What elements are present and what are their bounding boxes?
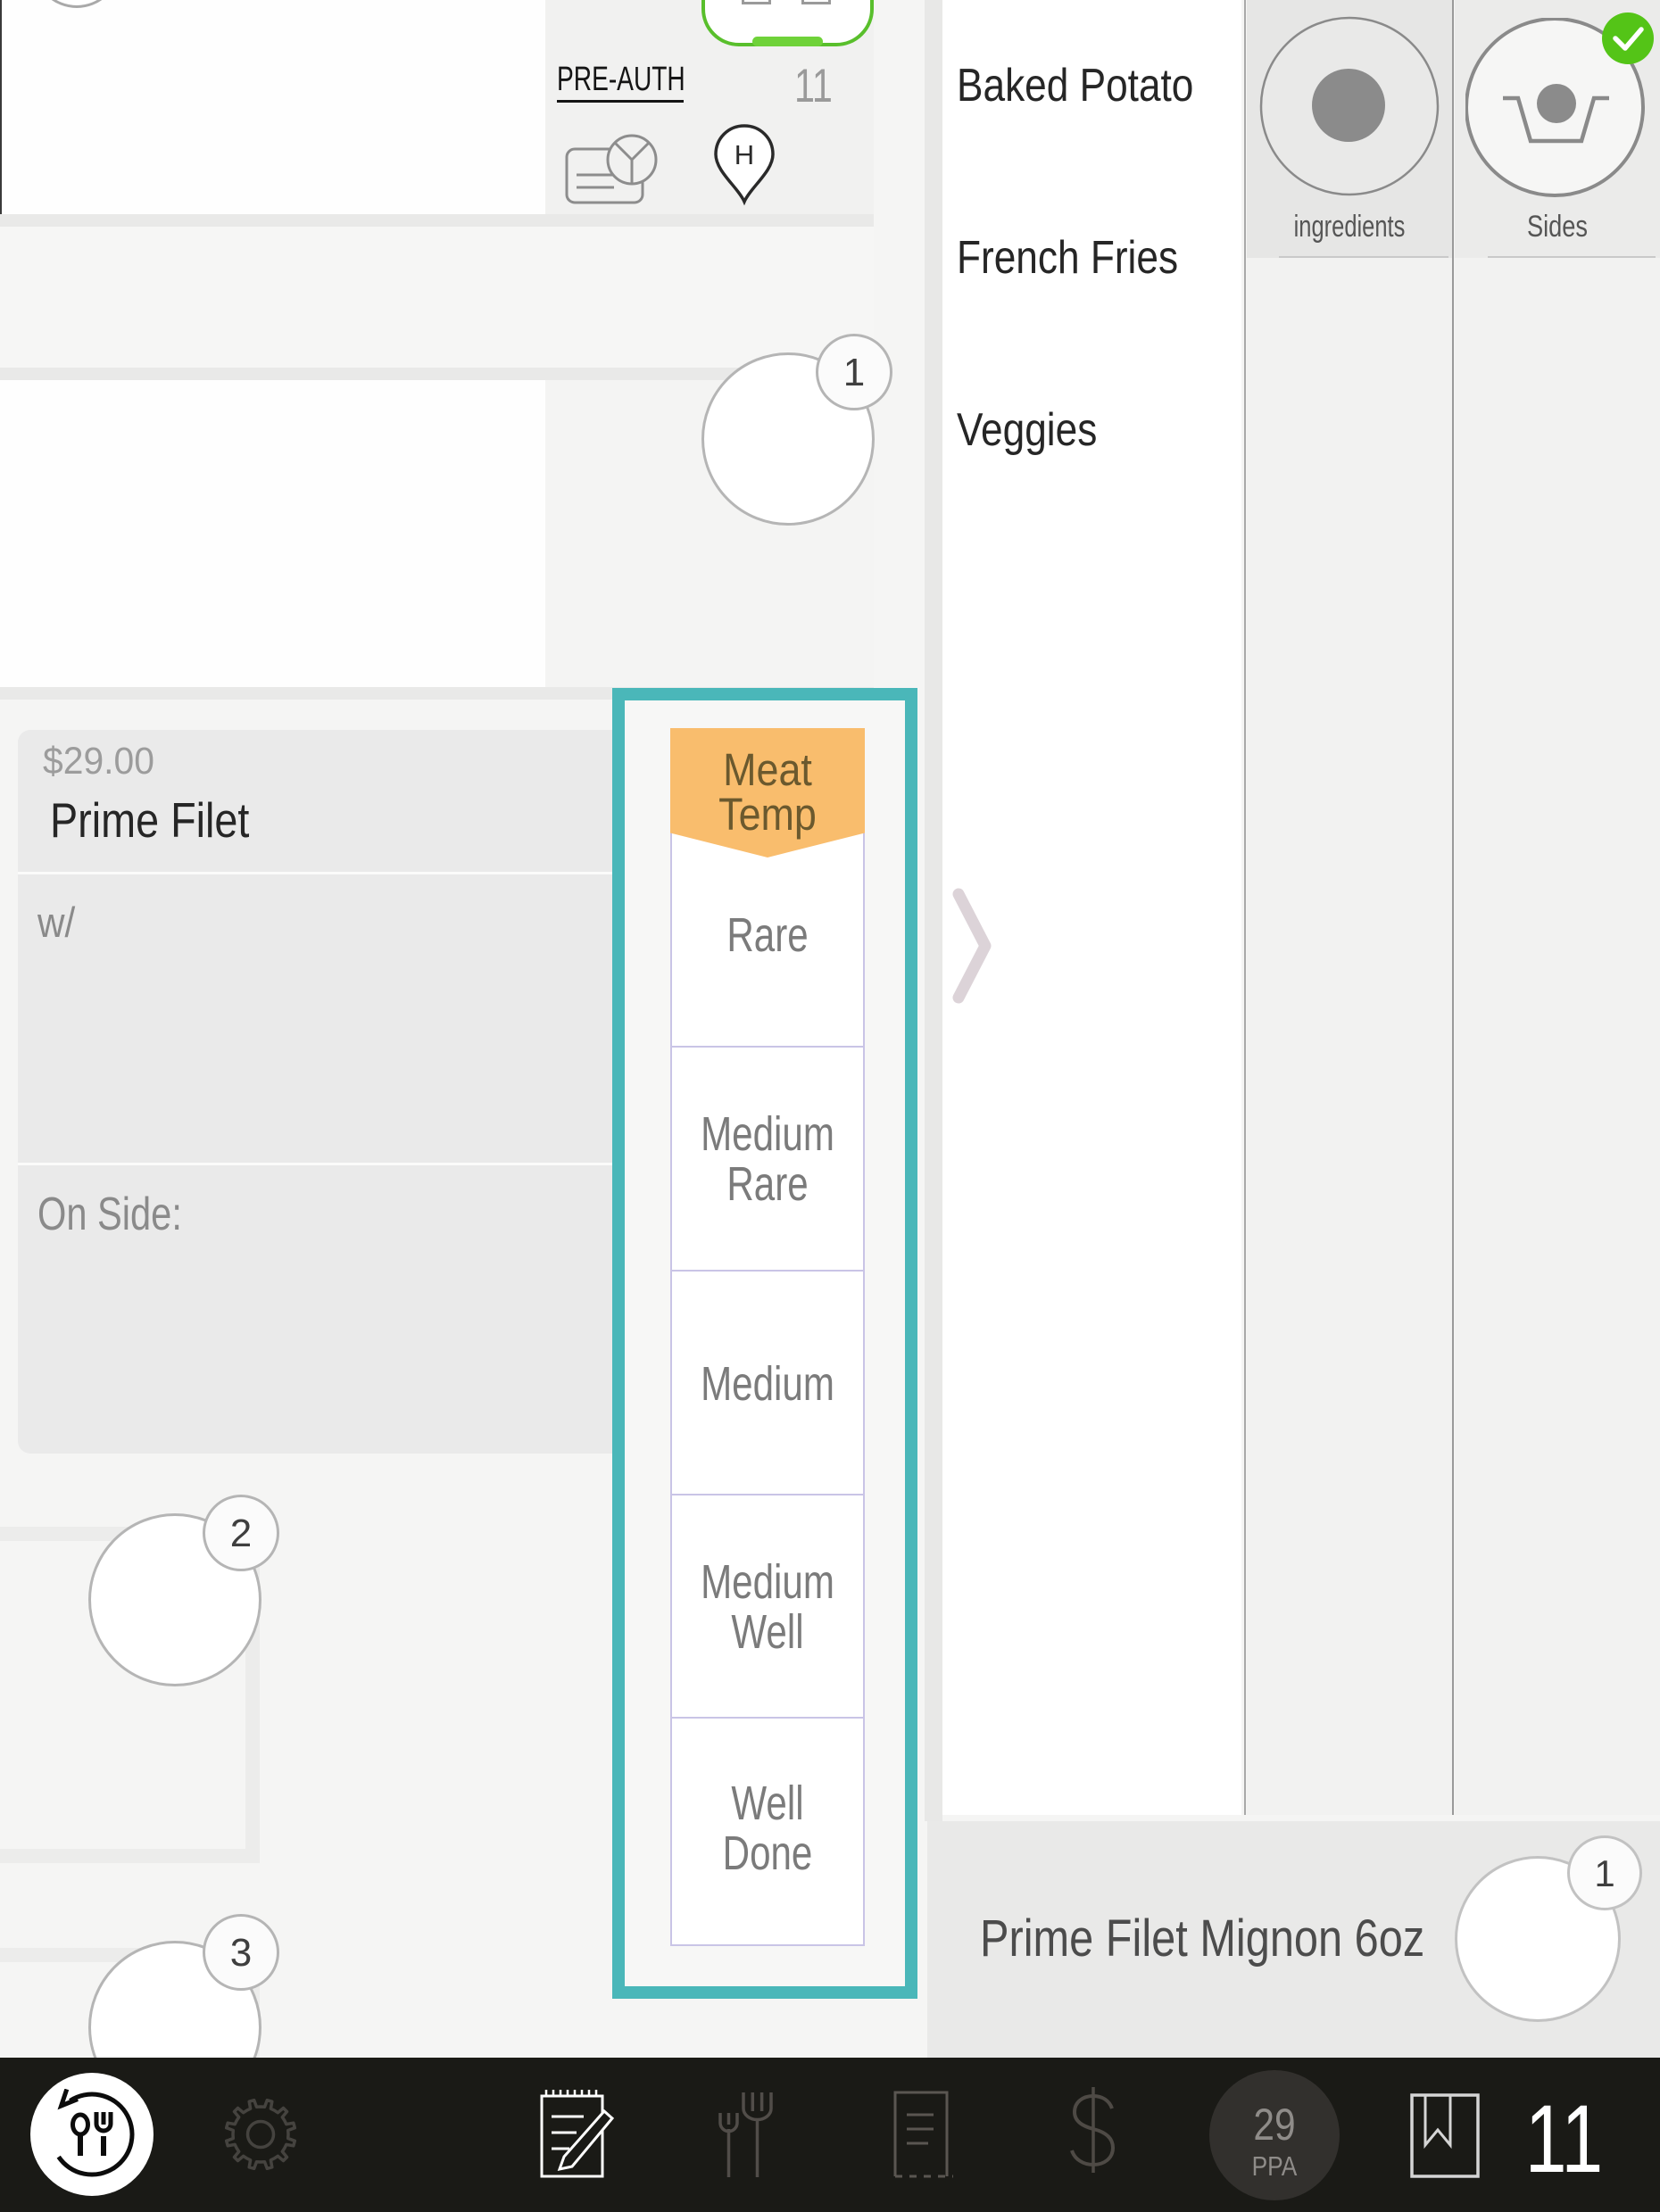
svg-text:H: H	[735, 139, 754, 170]
